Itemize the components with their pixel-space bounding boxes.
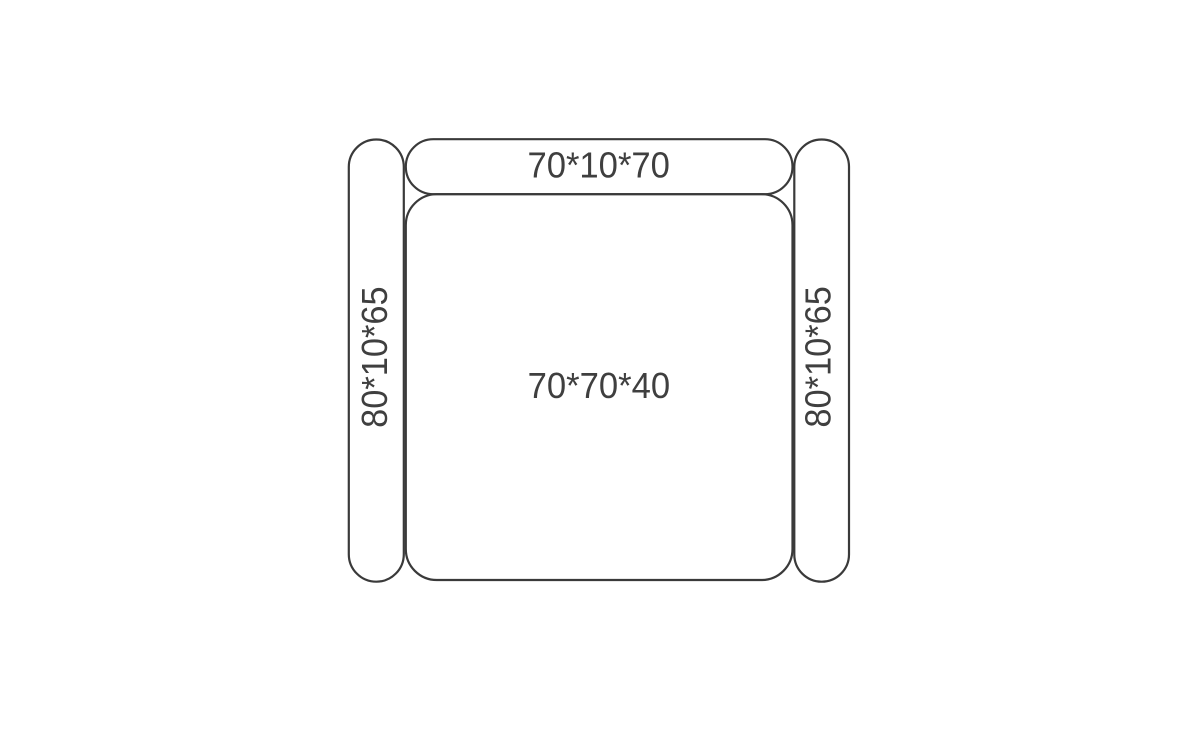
svg-text:70*10*70: 70*10*70 [527,145,670,186]
svg-text:80*10*65: 80*10*65 [797,286,838,428]
svg-text:80*10*65: 80*10*65 [354,286,395,428]
svg-text:70*70*40: 70*70*40 [528,365,671,406]
